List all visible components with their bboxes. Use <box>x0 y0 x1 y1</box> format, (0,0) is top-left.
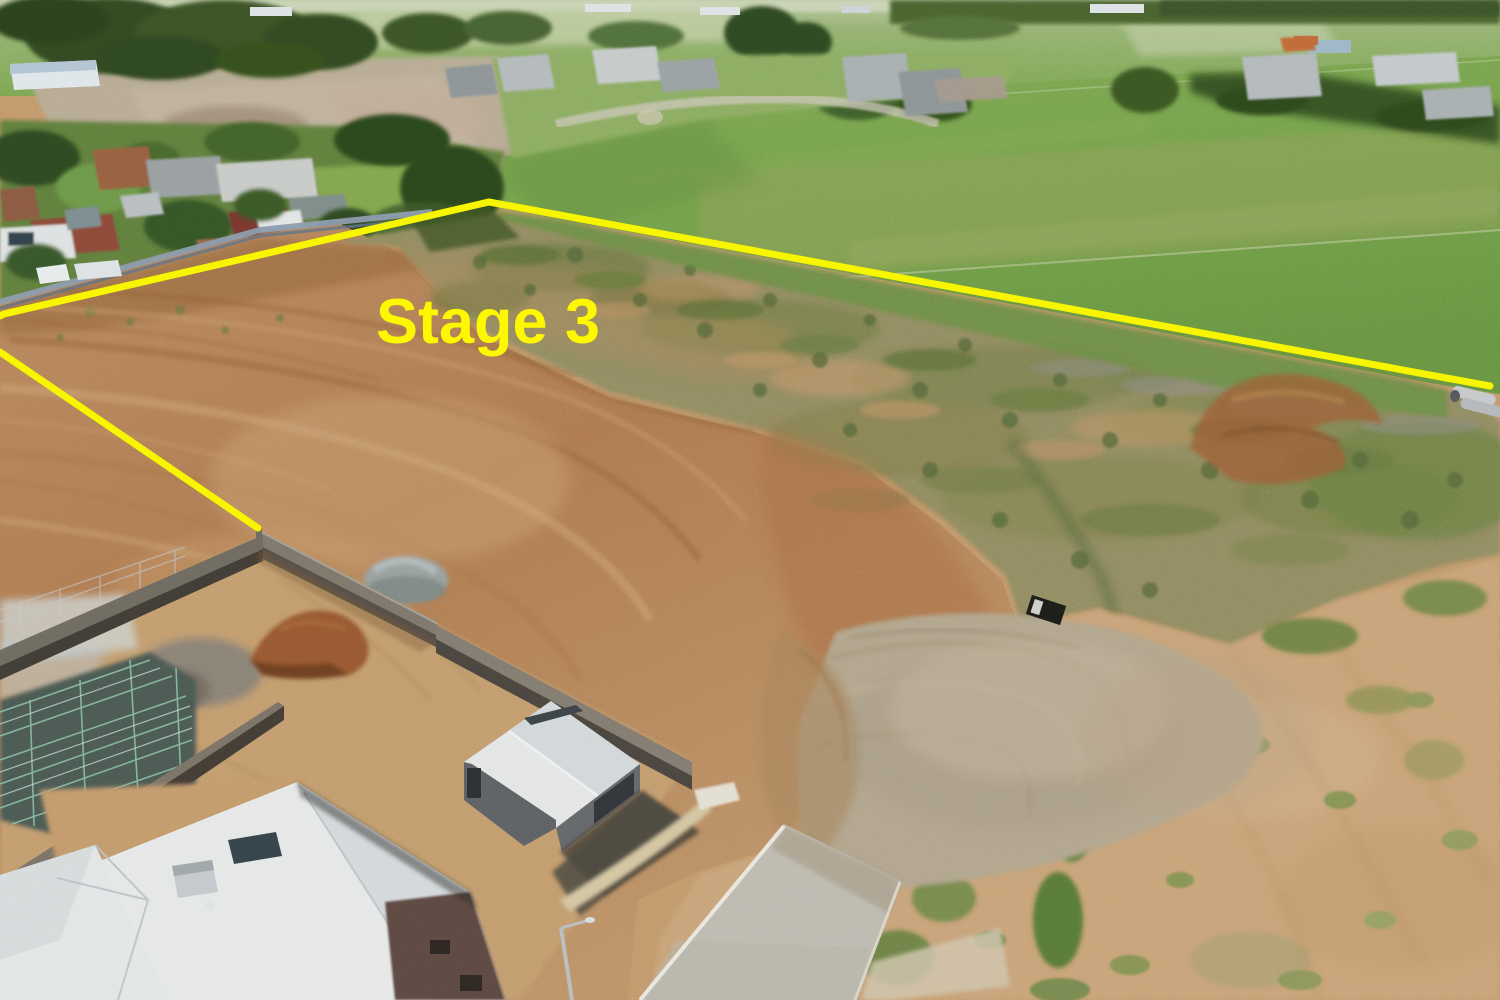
svg-text:Stage 3: Stage 3 <box>376 287 600 357</box>
